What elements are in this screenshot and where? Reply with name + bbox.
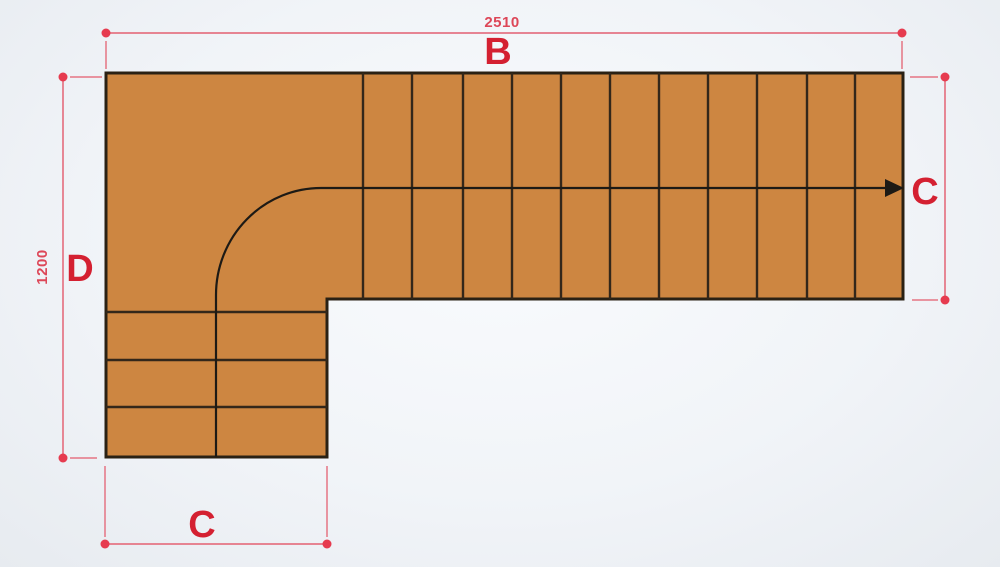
left-dimension-dot-top [59,73,68,82]
top-dimension-value: 2510 [484,14,519,31]
top-dimension-dot-left [102,29,111,38]
top-letter-label: B [484,31,511,73]
left-letter-label: D [66,248,93,290]
top-dimension: 2510 B [102,14,907,73]
left-dimension-value: 1200 [34,249,51,284]
left-dimension-dot-bottom [59,454,68,463]
exit-letter-label: C [911,171,938,213]
right-dimension-dot-top [941,73,950,82]
stair-plan-drawing: 2510 B 1200 D C C [0,0,1000,567]
stair-outline [106,73,903,457]
right-dimension-dot-bottom [941,296,950,305]
stair-plan-canvas: 2510 B 1200 D C C [0,0,1000,567]
right-dimension: C [910,73,950,305]
top-dimension-dot-right [898,29,907,38]
bottom-letter-label: C [188,504,215,546]
bottom-dimension-dot-right [323,540,332,549]
bottom-dimension-dot-left [101,540,110,549]
left-dimension: 1200 D [34,73,102,463]
bottom-dimension: C [101,466,332,549]
